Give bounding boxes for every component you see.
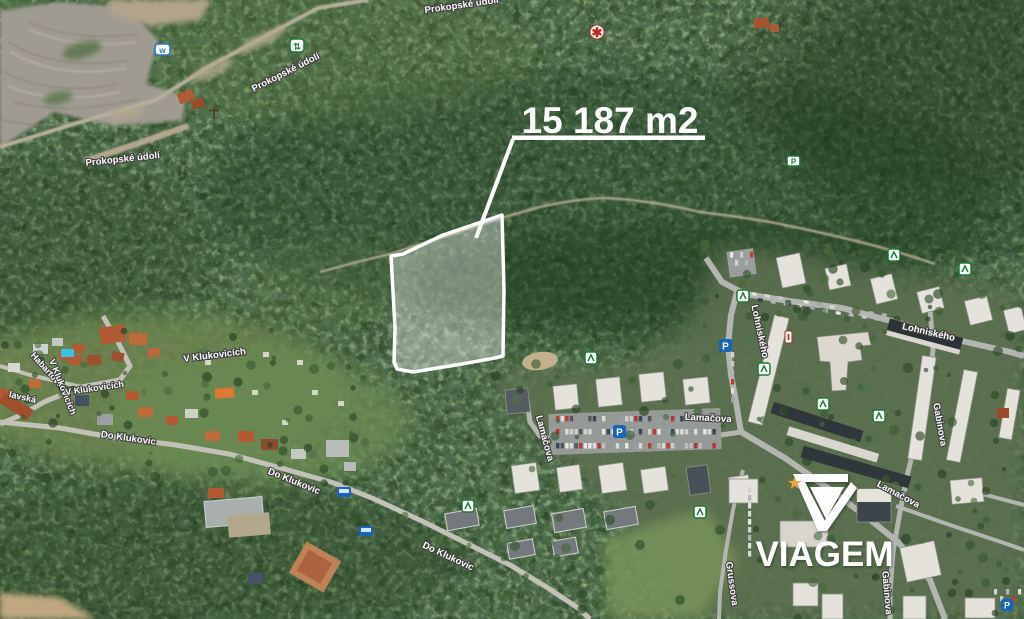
svg-text:15 187 m2: 15 187 m2 — [522, 100, 699, 141]
svg-text:⇅: ⇅ — [293, 42, 301, 52]
svg-text:P: P — [616, 428, 623, 439]
svg-text:✱: ✱ — [592, 25, 603, 40]
svg-text:P: P — [791, 158, 797, 167]
svg-text:VIAGEM: VIAGEM — [755, 535, 893, 574]
svg-text:★: ★ — [788, 475, 802, 492]
svg-text:P: P — [1004, 601, 1010, 611]
svg-text:P: P — [722, 342, 729, 353]
svg-text:w: w — [158, 46, 166, 55]
